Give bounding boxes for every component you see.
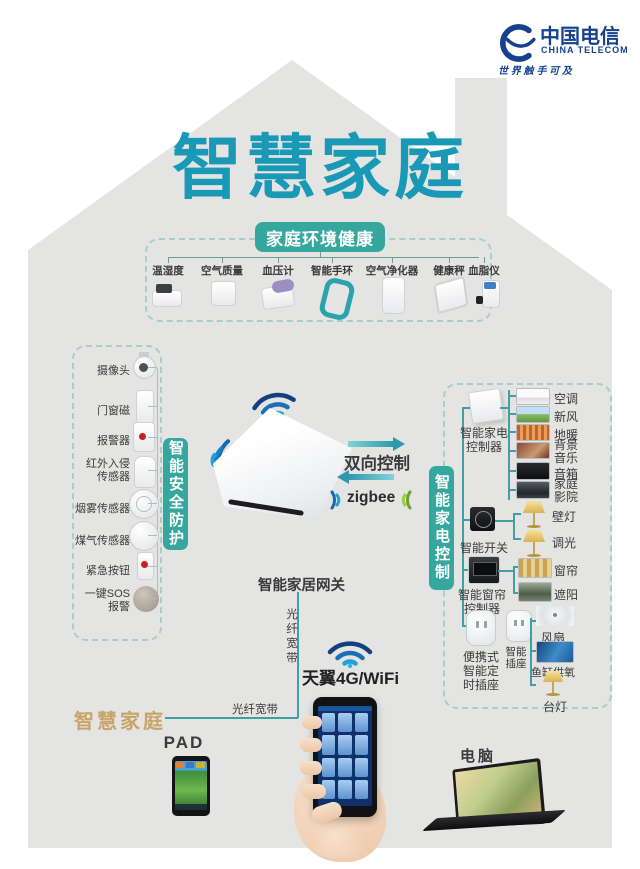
zigbee-label: zigbee	[347, 489, 403, 507]
china-telecom-logo: 中国电信 CHINA TELECOM 世 界 触 手 可 及	[482, 12, 632, 80]
ac-photo	[516, 388, 550, 405]
appliance-item-label: 窗帘	[554, 562, 584, 579]
zigbee-wave-right-icon	[398, 487, 414, 513]
curtain-controller-icon	[468, 556, 500, 584]
appliance-item-label: 家庭影院	[554, 478, 580, 504]
appliance-item-label: 新风	[554, 408, 584, 425]
health-item-label: 空气净化器	[364, 263, 420, 278]
smart-switch-icon	[470, 507, 495, 531]
china-telecom-mark-icon	[496, 22, 538, 64]
connector-line	[462, 519, 470, 521]
sunshade-photo	[518, 582, 552, 602]
smart-socket-icon	[506, 610, 532, 642]
fiber-vertical-label: 光纤宽带	[283, 608, 299, 692]
connector-line	[148, 503, 157, 504]
security-item-label: 紧急按钮	[68, 562, 130, 578]
hand-finger	[300, 738, 322, 752]
connector-line	[495, 520, 513, 522]
connector-line	[500, 407, 508, 409]
appliance-controller-icon	[468, 388, 504, 424]
curtain-photo	[518, 558, 552, 578]
arrow-left-icon	[348, 474, 394, 480]
floor-heating-photo	[516, 424, 550, 441]
appliance-item-label: 台灯	[543, 698, 573, 715]
controller-label: 便携式智能定时插座	[460, 650, 502, 692]
security-badge: 智能安全防护	[163, 438, 188, 550]
connector-line	[148, 535, 157, 536]
health-item-label: 血脂仪	[458, 263, 510, 278]
connector-line	[320, 252, 321, 257]
controller-label: 智能家电控制器	[458, 426, 510, 454]
connector-line	[508, 395, 516, 397]
connector-line	[148, 470, 157, 471]
appliance-item-label: 调光	[552, 534, 582, 551]
connector-line	[165, 717, 298, 719]
controller-label: 智能开关	[456, 539, 512, 556]
hand-finger	[302, 716, 322, 729]
health-item-label: 血压计	[250, 263, 306, 278]
connector-line	[462, 407, 470, 409]
door-window-sensor-icon	[136, 390, 154, 424]
air-quality-monitor-icon	[211, 281, 236, 306]
connector-line	[148, 437, 157, 438]
brand-label: 智慧家庭	[74, 705, 166, 734]
controller-label: 智能插座	[504, 646, 528, 670]
security-item-label: 门窗磁	[68, 402, 130, 418]
connector-line	[513, 538, 521, 540]
fresh-air-photo	[516, 406, 550, 423]
arrow-right-icon	[348, 441, 394, 447]
connector-line	[148, 598, 157, 599]
security-item-label: 摄像头	[68, 362, 130, 378]
connector-line	[168, 257, 479, 258]
home-theater-photo	[516, 481, 550, 499]
appliance-badge: 智能家电控制	[429, 466, 454, 590]
fiber-bottom-label: 光纤宽带	[232, 701, 292, 717]
health-item-label: 温湿度	[140, 263, 196, 278]
laptop-device	[424, 764, 554, 834]
gas-sensor-icon	[129, 521, 159, 551]
infrared-sensor-icon	[134, 456, 156, 488]
smartphone-device	[313, 697, 377, 817]
connector-line	[508, 450, 516, 452]
connector-line	[498, 570, 513, 572]
connector-line	[530, 684, 536, 686]
connector-line	[513, 513, 521, 515]
sos-button-icon	[133, 586, 159, 612]
appliance-item-label: 壁灯	[552, 508, 582, 525]
speaker-photo	[516, 462, 550, 480]
gateway-label: 智能家居网关	[258, 574, 358, 595]
connector-line	[513, 513, 515, 539]
connector-line	[508, 413, 516, 415]
health-item-label: 智能手环	[304, 263, 360, 278]
air-purifier-icon	[382, 277, 405, 314]
connector-line	[157, 368, 158, 602]
hand-wrist	[312, 828, 370, 858]
emergency-button-led	[141, 561, 148, 568]
appliance-item-label: 背景音乐	[554, 439, 580, 465]
page-title: 智慧家庭	[140, 112, 500, 213]
appliance-item-label: 遮阳	[554, 586, 584, 603]
connector-line	[513, 566, 515, 593]
two-way-label: 双向控制	[344, 450, 424, 474]
connector-line	[508, 489, 516, 491]
connector-line	[148, 367, 157, 368]
connector-line	[148, 406, 157, 407]
security-item-label: 一键SOS报警	[82, 588, 130, 614]
tablet-device	[172, 756, 210, 816]
logo-english: CHINA TELECOM	[541, 45, 629, 55]
security-item-label: 煤气传感器	[68, 532, 130, 548]
health-badge: 家庭环境健康	[255, 222, 385, 252]
appliance-item-label: 空调	[554, 390, 584, 407]
connector-line	[508, 470, 516, 472]
logo-slogan: 世 界 触 手 可 及	[498, 62, 628, 77]
wifi-4g-label: 天翼4G/WiFi	[302, 664, 412, 689]
security-item-label: 红外入侵传感器	[82, 458, 130, 484]
zigbee-wave-left-icon	[328, 487, 344, 513]
security-item-label: 报警器	[68, 432, 130, 448]
portable-socket-icon	[466, 610, 496, 646]
security-item-label: 烟雾传感器	[68, 500, 130, 516]
alarm-led	[139, 433, 146, 440]
connector-line	[148, 566, 157, 567]
smoke-sensor-ring	[136, 496, 152, 512]
smart-home-poster: 中国电信 CHINA TELECOM 世 界 触 手 可 及 智慧家庭 家庭环境…	[0, 0, 640, 869]
hand-finger	[302, 784, 326, 799]
connector-line	[508, 390, 510, 500]
connector-line	[508, 431, 516, 433]
fan-photo	[536, 606, 574, 626]
wifi-icon	[322, 626, 378, 668]
fish-tank-photo	[536, 641, 574, 663]
background-music-photo	[516, 442, 550, 459]
hand-finger	[300, 761, 322, 775]
health-item-label: 空气质量	[194, 263, 250, 278]
pad-label: PAD	[155, 733, 213, 753]
